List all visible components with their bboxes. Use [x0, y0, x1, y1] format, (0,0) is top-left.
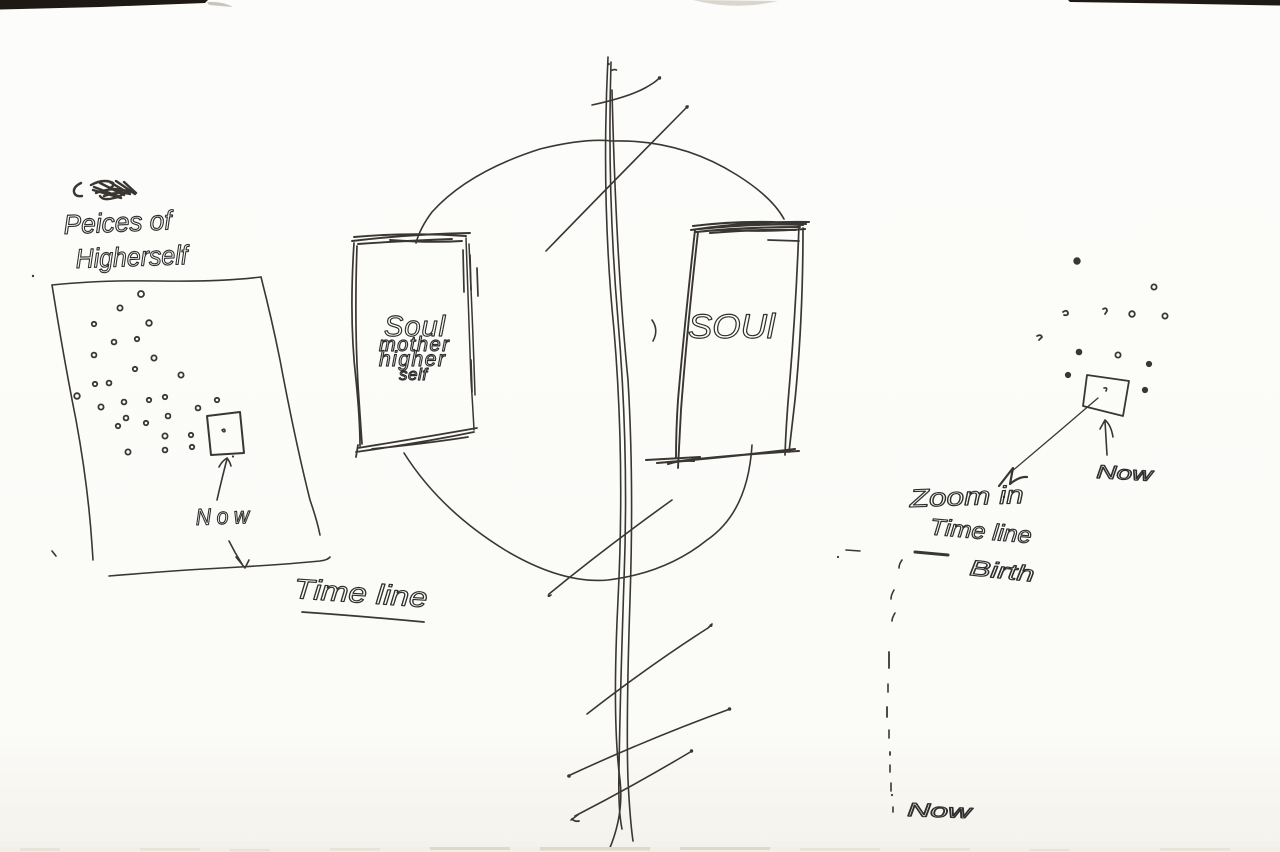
svg-text:Zoom in: Zoom in: [908, 481, 1024, 513]
svg-text:Higherself: Higherself: [75, 240, 190, 274]
svg-text:Now: Now: [195, 502, 255, 530]
svg-text:self: self: [399, 365, 429, 384]
svg-text:Peices of: Peices of: [63, 205, 175, 240]
svg-text:Now: Now: [1096, 462, 1155, 486]
svg-text:SOUl: SOUl: [688, 308, 777, 346]
svg-text:Now: Now: [907, 800, 974, 823]
